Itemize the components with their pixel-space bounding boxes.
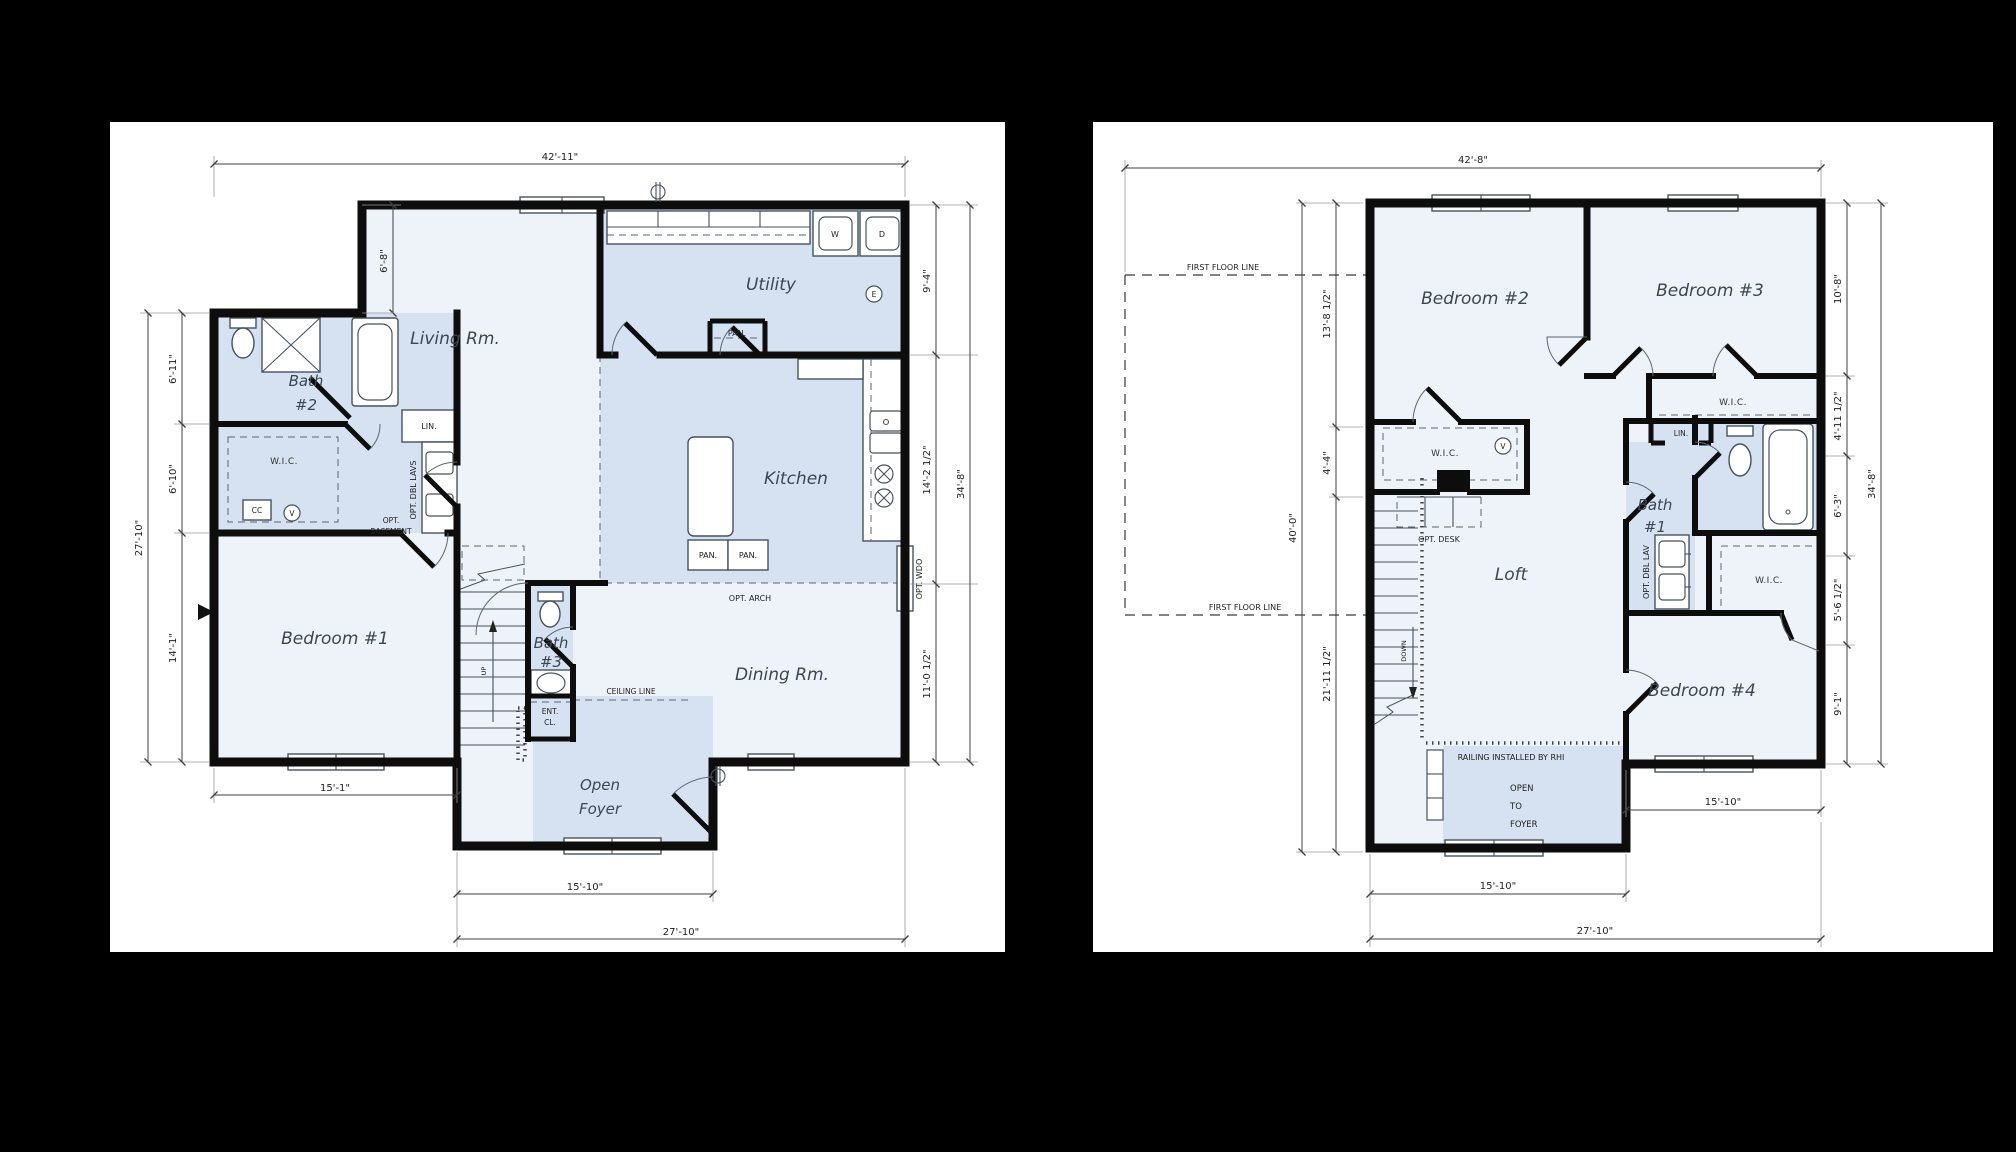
dim-left-overall-b: 40'-0" xyxy=(1288,513,1299,543)
room-label-bedroom1: Bedroom #1 xyxy=(281,629,389,649)
room-label-bath1-line1: Bath xyxy=(1638,496,1673,514)
pantry-label-utility: PAN. xyxy=(728,329,746,338)
dim-bottom-overall-b: 27'-10" xyxy=(1577,926,1613,937)
opt-dbl-lav-label: OPT. DBL LAV xyxy=(1642,545,1651,599)
room-label-bath2-line2: #2 xyxy=(295,396,317,414)
room-label-wic-b3: W.I.C. xyxy=(1719,398,1747,408)
dim-right-seg5-b: 9'-1" xyxy=(1833,692,1844,716)
dim-right-seg4-b: 5'-6 1/2" xyxy=(1833,579,1844,622)
open-to-foyer-line2: TO xyxy=(1509,802,1522,812)
open-to-foyer-line3: FOYER xyxy=(1510,820,1538,830)
dim-bottom-overall: 27'-10" xyxy=(663,927,699,938)
room-label-living: Living Rm. xyxy=(410,329,500,349)
room-label-wic-b4: W.I.C. xyxy=(1755,576,1783,586)
room-label-utility: Utility xyxy=(746,275,797,295)
pantry-label-kitchen-2: PAN. xyxy=(739,551,757,560)
dim-right-seg1: 9'-4" xyxy=(922,269,933,293)
opt-window-label: OPT. WDO xyxy=(915,559,924,600)
room-label-dining: Dining Rm. xyxy=(735,665,829,685)
opt-dbl-lavs-label: OPT. DBL LAVS xyxy=(409,461,418,520)
first-floor-line-label-bottom: FIRST FLOOR LINE xyxy=(1209,603,1281,612)
dim-top: 42'-11" xyxy=(542,152,578,163)
first-floor-room-fills xyxy=(214,205,905,846)
room-label-bedroom3: Bedroom #3 xyxy=(1656,281,1764,301)
room-label-bath3-line2: #3 xyxy=(540,653,562,671)
dim-right-seg2-b: 4'-11 1/2" xyxy=(1833,391,1844,440)
stairs-down-label: DOWN xyxy=(1400,640,1408,662)
dim-bottom-left: 15'-1" xyxy=(320,783,350,794)
blueprint-canvas: Living Rm. Utility Kitchen Dining Rm. Be… xyxy=(0,0,2016,1152)
dim-bottom-inner: 15'-10" xyxy=(567,882,603,893)
dim-bottom-inner-b: 15'-10" xyxy=(1480,881,1516,892)
room-label-bath1-line2: #1 xyxy=(1644,518,1666,536)
linen-label-b: LIN. xyxy=(1674,429,1688,438)
second-floor-plan-drawing: Bedroom #2 Bedroom #3 Bedroom #4 Loft Ba… xyxy=(1093,122,1993,952)
room-label-bath2-line1: Bath xyxy=(289,372,324,390)
first-floor-line-outline xyxy=(1125,275,1370,615)
cc-label: CC xyxy=(252,506,262,515)
dim-left-seg3-b: 21'-11 1/2" xyxy=(1322,646,1333,702)
open-to-foyer-line1: OPEN xyxy=(1510,784,1534,794)
dim-top-b: 42'-8" xyxy=(1458,155,1488,166)
dim-left-seg2-b: 4'-4" xyxy=(1322,451,1333,475)
vent-symbol-b: V xyxy=(1500,442,1506,451)
linen-label: LIN. xyxy=(421,422,436,431)
dim-right-seg1-b: 10'-8" xyxy=(1833,274,1844,304)
dim-left-seg1-b: 13'-8 1/2" xyxy=(1322,289,1333,338)
room-label-kitchen: Kitchen xyxy=(764,469,828,489)
room-label-loft: Loft xyxy=(1495,565,1529,585)
washer-icon: W xyxy=(831,230,839,239)
entry-closet-label-line2: CL. xyxy=(544,718,556,727)
dim-right-overall: 34'-8" xyxy=(956,469,967,499)
dryer-icon: D xyxy=(879,230,885,239)
opt-desk-label: OPT. DESK xyxy=(1418,535,1460,544)
ceiling-line-label: CEILING LINE xyxy=(606,687,655,696)
room-label-wic-b2: W.I.C. xyxy=(1431,449,1459,459)
opt-basement-label-line1: OPT. xyxy=(383,516,400,525)
dim-right-seg3-b: 6'-3" xyxy=(1833,494,1844,518)
dim-left-seg2: 6'-10" xyxy=(168,464,179,494)
room-label-bedroom2: Bedroom #2 xyxy=(1421,289,1529,309)
dim-left-seg3: 14'-1" xyxy=(168,633,179,663)
vent-symbol: V xyxy=(289,509,295,518)
room-label-bedroom4: Bedroom #4 xyxy=(1648,681,1756,701)
dim-right-seg3: 11'-0 1/2" xyxy=(922,649,933,698)
electrical-symbol: E xyxy=(872,290,877,299)
opt-basement-label-line2: BASEMENT xyxy=(370,527,412,536)
first-floor-plan-sheet: Living Rm. Utility Kitchen Dining Rm. Be… xyxy=(110,122,1005,952)
dim-mid-right-b: 15'-10" xyxy=(1705,797,1741,808)
dim-left-overall: 27'-10" xyxy=(134,520,145,556)
pantry-label-kitchen-1: PAN. xyxy=(699,551,717,560)
opt-arch-label: OPT. ARCH xyxy=(729,594,771,603)
room-label-wic: W.I.C. xyxy=(270,457,298,467)
dim-upper-left: 6'-8" xyxy=(379,249,390,273)
first-floor-line-label-top: FIRST FLOOR LINE xyxy=(1187,263,1259,272)
railing-note: RAILING INSTALLED BY RHI xyxy=(1458,753,1565,762)
room-label-foyer-line2: Foyer xyxy=(579,800,622,818)
entry-closet-label-line1: ENT. xyxy=(542,707,558,716)
second-floor-plan-sheet: Bedroom #2 Bedroom #3 Bedroom #4 Loft Ba… xyxy=(1093,122,1993,952)
room-label-foyer-line1: Open xyxy=(580,776,620,794)
first-floor-plan-drawing: Living Rm. Utility Kitchen Dining Rm. Be… xyxy=(110,122,1005,952)
stairs-up-label: UP xyxy=(480,667,488,676)
dim-right-seg2: 14'-2 1/2" xyxy=(922,445,933,494)
dim-left-seg1: 6'-11" xyxy=(168,354,179,384)
dim-right-overall-b: 34'-8" xyxy=(1867,469,1878,499)
room-label-bath3-line1: Bath xyxy=(534,634,569,652)
